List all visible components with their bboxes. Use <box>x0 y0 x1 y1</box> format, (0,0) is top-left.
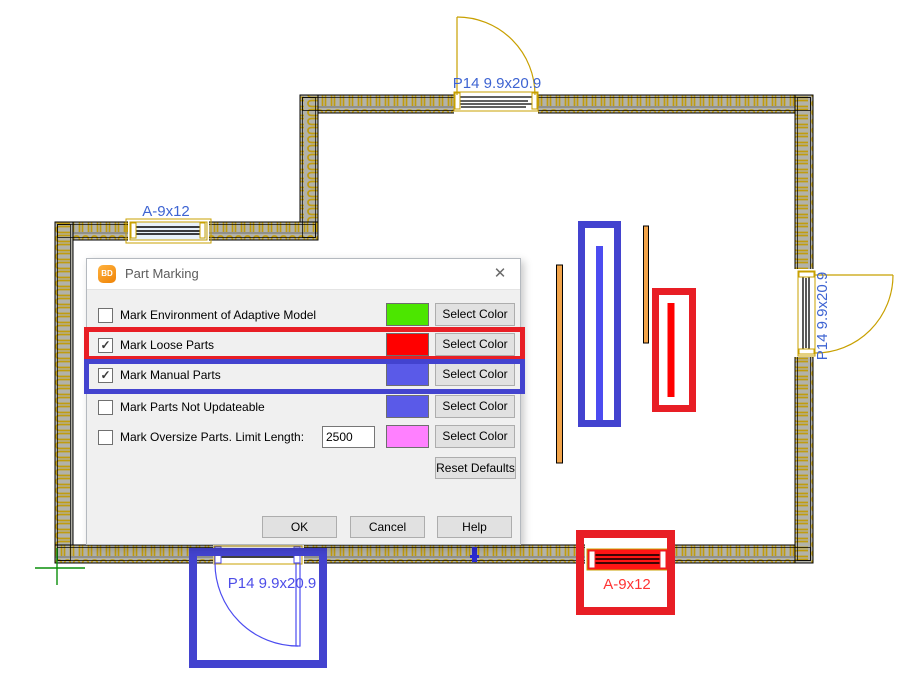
checkbox-mark-oversize[interactable] <box>98 430 113 445</box>
color-swatch-environment <box>386 303 429 326</box>
checkbox-mark-environment[interactable] <box>98 308 113 323</box>
door-right-label: P14 9.9x20.9 <box>814 272 831 360</box>
color-swatch-oversize <box>386 425 429 448</box>
part-marking-dialog: BD Part Marking ✕ Mark Environment of Ad… <box>86 258 521 545</box>
select-color-button-loose-parts[interactable]: Select Color <box>435 333 515 356</box>
color-swatch-loose-parts <box>386 333 429 356</box>
close-icon[interactable]: ✕ <box>488 259 512 289</box>
window-bottom-label: A-9x12 <box>603 576 651 593</box>
app-icon: BD <box>98 265 116 283</box>
door-top-label: P14 9.9x20.9 <box>453 75 541 92</box>
door-bottom-label: P14 9.9x20.9 <box>228 575 316 592</box>
label-mark-oversize: Mark Oversize Parts. Limit Length: <box>120 425 304 449</box>
checkbox-mark-manual-parts[interactable]: ✓ <box>98 368 113 383</box>
part-loose-marked[interactable] <box>656 292 693 409</box>
label-mark-manual-parts: Mark Manual Parts <box>120 363 221 387</box>
cancel-button[interactable]: Cancel <box>350 516 425 538</box>
manual-mark-rect-door <box>193 552 323 664</box>
cad-canvas[interactable]: P14 9.9x20.9 A-9x12 P14 9.9x20.9 <box>0 0 911 685</box>
window-left[interactable] <box>126 219 211 243</box>
ok-button[interactable]: OK <box>262 516 337 538</box>
label-mark-loose-parts: Mark Loose Parts <box>120 333 214 357</box>
select-color-button-oversize[interactable]: Select Color <box>435 425 515 448</box>
window-left-label: A-9x12 <box>142 203 190 220</box>
label-mark-environment: Mark Environment of Adaptive Model <box>120 303 316 327</box>
select-color-button-not-updateable[interactable]: Select Color <box>435 395 515 418</box>
checkbox-mark-not-updateable[interactable] <box>98 400 113 415</box>
part-orange-left[interactable] <box>557 265 563 463</box>
door-right[interactable] <box>798 271 893 356</box>
help-button[interactable]: Help <box>437 516 512 538</box>
dialog-titlebar[interactable]: BD Part Marking ✕ <box>87 259 520 290</box>
row-mark-manual-parts: ✓ Mark Manual Parts Select Color <box>97 363 515 387</box>
select-color-button-manual-parts[interactable]: Select Color <box>435 363 515 386</box>
checkbox-mark-loose-parts[interactable]: ✓ <box>98 338 113 353</box>
color-swatch-not-updateable <box>386 395 429 418</box>
row-mark-environment: Mark Environment of Adaptive Model Selec… <box>97 303 515 327</box>
dialog-title: Part Marking <box>125 259 199 289</box>
part-orange-right[interactable] <box>644 226 649 343</box>
door-top[interactable] <box>454 17 538 111</box>
reset-defaults-button[interactable]: Reset Defaults <box>435 457 516 479</box>
label-mark-not-updateable: Mark Parts Not Updateable <box>120 395 265 419</box>
row-mark-loose-parts: ✓ Mark Loose Parts Select Color <box>97 333 515 357</box>
color-swatch-manual-parts <box>386 363 429 386</box>
row-mark-oversize: Mark Oversize Parts. Limit Length: Selec… <box>97 425 515 449</box>
limit-length-input[interactable] <box>322 426 375 448</box>
part-manual-marked[interactable] <box>582 225 618 424</box>
row-mark-not-updateable: Mark Parts Not Updateable Select Color <box>97 395 515 419</box>
select-color-button-environment[interactable]: Select Color <box>435 303 515 326</box>
